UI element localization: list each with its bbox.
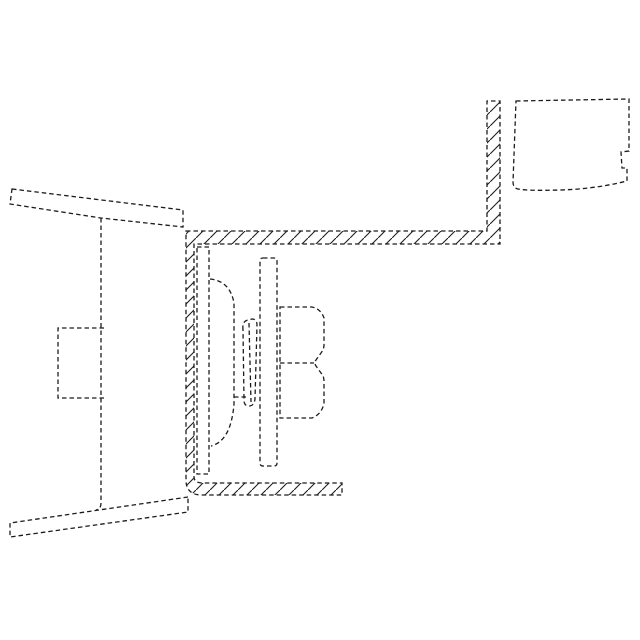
outer-panel-upper-arm [10,189,183,227]
panel-pocket-rect [58,328,104,398]
speaker-diaphragm [210,279,234,446]
outer-panel-inner-line [96,218,101,510]
magnet-assembly [280,307,324,418]
frame-bar [260,258,277,466]
outer-panel-lower-arm [10,497,188,537]
cross-section-figure [0,0,640,640]
trim-box [513,99,629,190]
voice-coil-inner-line [249,323,251,402]
speaker-frame-strip [197,247,209,474]
technical-drawing-canvas [0,0,640,640]
